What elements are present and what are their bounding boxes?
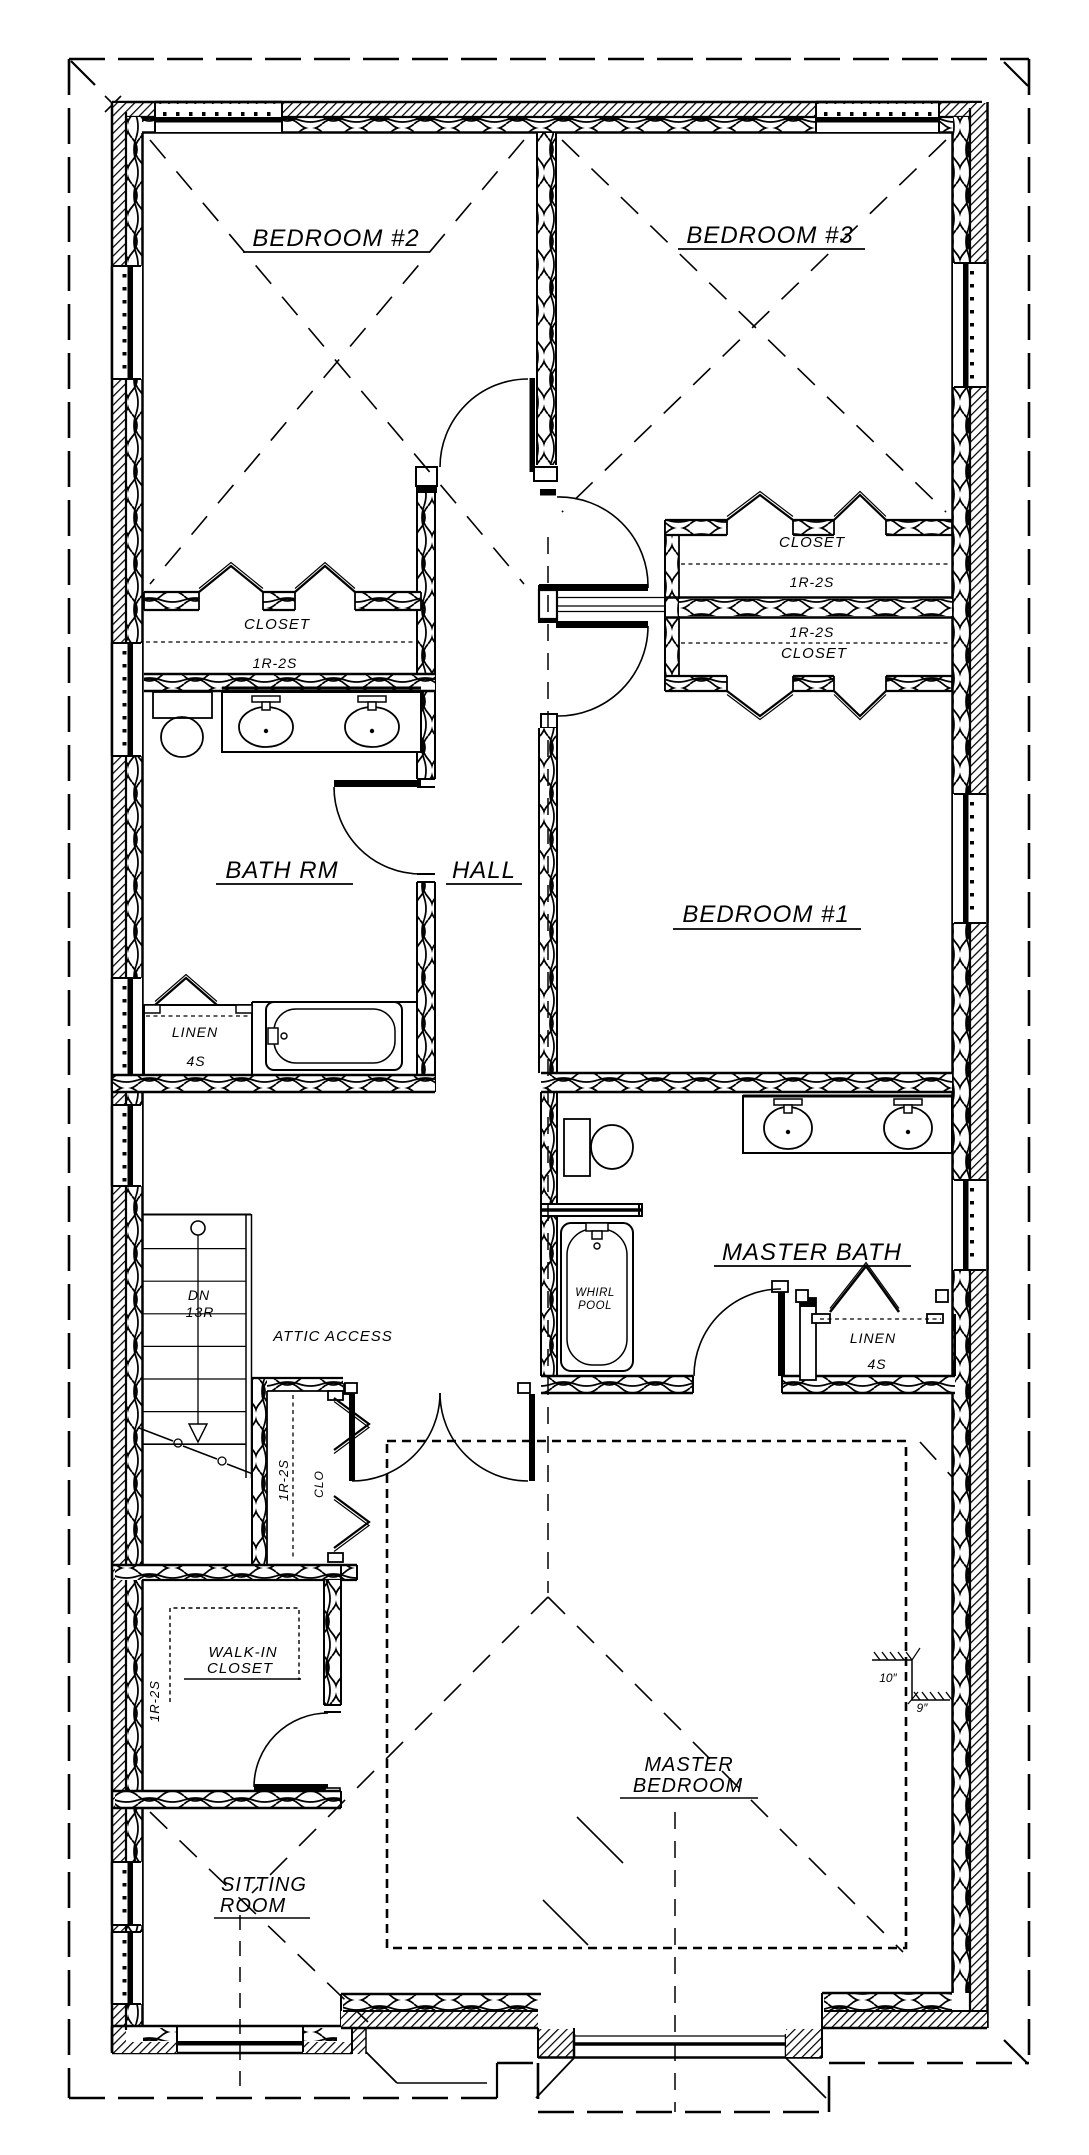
svg-text:10″: 10″ <box>879 1671 897 1685</box>
svg-text:1R-2S: 1R-2S <box>147 1680 162 1722</box>
svg-text:CLO: CLO <box>312 1470 326 1498</box>
svg-text:ATTIC ACCESS: ATTIC ACCESS <box>272 1328 393 1345</box>
svg-text:WALK-IN: WALK-IN <box>208 1644 277 1661</box>
svg-text:WHIRL: WHIRL <box>575 1287 615 1299</box>
svg-text:CLOSET: CLOSET <box>779 534 846 551</box>
svg-text:CLOSET: CLOSET <box>781 645 848 662</box>
svg-text:1R-2S: 1R-2S <box>276 1459 291 1501</box>
svg-text:MASTER: MASTER <box>644 1754 733 1776</box>
svg-text:BATH RM: BATH RM <box>225 857 338 884</box>
svg-text:1R-2S: 1R-2S <box>790 624 835 640</box>
svg-text:LINEN: LINEN <box>850 1330 896 1346</box>
svg-text:9″: 9″ <box>917 1701 929 1715</box>
svg-text:MASTER BATH: MASTER BATH <box>722 1239 902 1266</box>
svg-text:SITTING: SITTING <box>221 1874 307 1896</box>
svg-text:1R-2S: 1R-2S <box>790 574 835 590</box>
svg-text:BEDROOM: BEDROOM <box>633 1775 743 1797</box>
svg-text:CLOSET: CLOSET <box>207 1660 274 1677</box>
svg-text:BEDROOM #3: BEDROOM #3 <box>686 222 853 249</box>
svg-text:ROOM: ROOM <box>220 1895 286 1917</box>
svg-text:LINEN: LINEN <box>172 1024 218 1040</box>
svg-text:BEDROOM #1: BEDROOM #1 <box>682 901 849 928</box>
svg-text:4S: 4S <box>867 1356 886 1372</box>
svg-text:DN: DN <box>188 1287 210 1303</box>
svg-text:1R-2S: 1R-2S <box>253 655 298 671</box>
svg-text:POOL: POOL <box>578 1300 612 1312</box>
svg-text:BEDROOM #2: BEDROOM #2 <box>252 225 419 252</box>
svg-text:4S: 4S <box>186 1053 205 1069</box>
svg-text:HALL: HALL <box>452 857 516 884</box>
svg-text:CLOSET: CLOSET <box>244 616 311 633</box>
svg-text:13R: 13R <box>186 1304 215 1320</box>
